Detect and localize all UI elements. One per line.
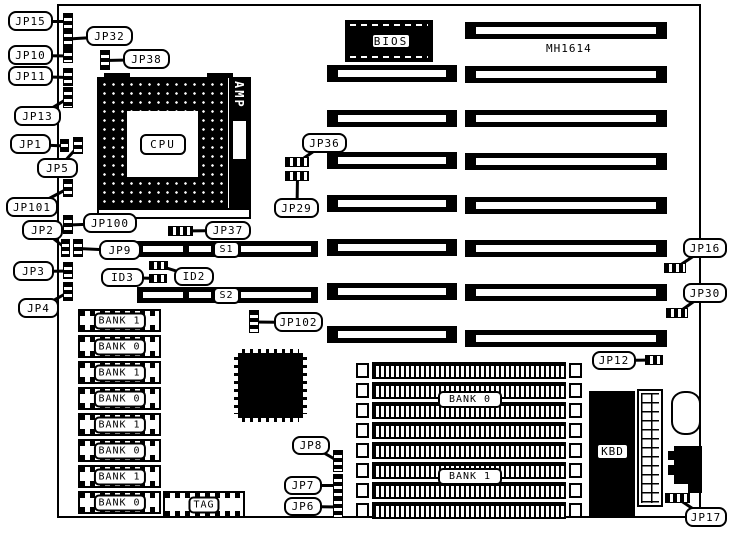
- amp-socket-lever: AMP: [229, 77, 251, 208]
- isa-slot-middle: [327, 110, 457, 127]
- power-connector: [637, 389, 663, 507]
- isa-slot-right: [465, 153, 667, 170]
- left-bank-label: BANK 0: [93, 442, 145, 459]
- callout-jp101-label: JP101: [6, 197, 58, 217]
- isa-slot-right: [465, 110, 667, 127]
- simm-slot-left: BANK 0: [78, 335, 161, 358]
- isa-slot-middle-contacts: [338, 157, 446, 164]
- jumper-jp101: [63, 179, 73, 197]
- callout-jp8-label: JP8: [292, 436, 330, 455]
- simm-slot-left: BANK 1: [78, 361, 161, 384]
- jumper-jp3: [63, 262, 73, 279]
- isa-slot-middle: [327, 239, 457, 256]
- isa-slot-middle: [327, 283, 457, 300]
- isa-slot-middle-contacts: [338, 115, 446, 122]
- motherboard-jumper-diagram: BIOS MH1614 CPU AMP TAG S1 S2 BANK 0 BAN…: [0, 0, 731, 536]
- left-bank-label: BANK 1: [93, 416, 145, 433]
- jumper-jp29: [285, 171, 309, 181]
- jumper-jp37: [168, 226, 193, 236]
- bios-chip-dash-top: [350, 24, 428, 26]
- simm-clip-right: [569, 423, 582, 438]
- jumper-jp2: [61, 239, 70, 257]
- isa-slot-middle-contacts: [338, 70, 446, 77]
- jumper-jp38: [100, 50, 110, 70]
- jumper-jp11: [63, 68, 73, 86]
- isa-slot-middle-contacts: [338, 200, 446, 207]
- isa-slot-right-contacts: [476, 115, 656, 122]
- isa-slot-middle-contacts: [338, 331, 446, 338]
- isa-slot-right-contacts: [476, 158, 656, 165]
- isa-slot-middle: [327, 65, 457, 82]
- slot-label-s2: S2: [213, 287, 240, 304]
- jumper-jp36: [285, 157, 309, 167]
- isa-slot-middle-contacts: [338, 288, 446, 295]
- callout-jp30-label: JP30: [683, 283, 727, 303]
- jumper-jp100: [63, 215, 73, 234]
- simm-clip-right: [569, 363, 582, 378]
- jumper-jp8: [333, 450, 343, 472]
- simm-socket-right: [356, 442, 582, 459]
- isa-slot-right: [465, 330, 667, 347]
- isa-slot-right: [465, 284, 667, 301]
- din-step: [688, 483, 702, 493]
- left-bank-label: BANK 1: [93, 468, 145, 485]
- callout-jp37-label: JP37: [205, 221, 251, 240]
- callout-jp10-label: JP10: [8, 45, 53, 65]
- left-bank-label: BANK 0: [93, 338, 145, 355]
- simm-clip-left: [356, 403, 369, 418]
- right-bank1-label: BANK 1: [438, 468, 502, 485]
- qfp-pins-top: [242, 349, 299, 353]
- jumper-jp10: [63, 48, 73, 63]
- isa-slot-right: [465, 240, 667, 257]
- simm-clip-left: [356, 503, 369, 518]
- mounting-blob-outline: [671, 391, 701, 435]
- simm-clip-right: [569, 383, 582, 398]
- isa-slot-right: [465, 197, 667, 214]
- callout-jp7-label: JP7: [284, 476, 322, 495]
- simm-socket-right: [356, 362, 582, 379]
- tag-label: TAG: [188, 496, 219, 513]
- qfp-chip: [238, 353, 303, 418]
- simm-clip-right: [569, 503, 582, 518]
- jumper-jp32: [63, 29, 73, 48]
- tag-socket: TAG: [163, 491, 245, 518]
- amp-lever-window: [233, 121, 246, 159]
- qfp-pins-left: [234, 357, 238, 414]
- callout-jp102-label: JP102: [274, 312, 323, 332]
- isa-slot-right: [465, 66, 667, 83]
- simm-socket-contacts: [372, 422, 566, 439]
- jumper-jp5: [73, 137, 83, 154]
- isa-slot-right-contacts: [476, 335, 656, 342]
- callout-jp11-label: JP11: [8, 66, 53, 86]
- jumper-jp15: [63, 13, 73, 29]
- isa-slot-middle-contacts: [338, 244, 446, 251]
- simm-slot-left: BANK 0: [78, 387, 161, 410]
- callout-jp15-label: JP15: [8, 11, 53, 31]
- callout-jp4-label: JP4: [18, 298, 59, 318]
- isa-slot-middle: [327, 152, 457, 169]
- amp-brand-label: AMP: [232, 81, 246, 109]
- callout-jp5-label: JP5: [37, 158, 78, 178]
- slot-bar-contact: [143, 246, 183, 252]
- slot-bar-contact: [241, 292, 311, 298]
- callout-jp32-label: JP32: [86, 26, 133, 46]
- isa-slot-right: [465, 22, 667, 39]
- callout-jp16-label: JP16: [683, 238, 727, 258]
- simm-clip-right: [569, 463, 582, 478]
- cpu-socket-tab-left: [104, 70, 130, 78]
- bios-label: BIOS: [371, 33, 411, 49]
- jumper-jp1: [60, 139, 69, 152]
- callout-jp29-label: JP29: [274, 198, 319, 218]
- slot-bar-contact: [189, 292, 211, 298]
- simm-slot-left: BANK 1: [78, 309, 161, 332]
- simm-socket-right: [356, 422, 582, 439]
- simm-clip-left: [356, 483, 369, 498]
- qfp-pins-right: [303, 357, 307, 414]
- slot-bar-contact: [241, 246, 311, 252]
- simm-clip-left: [356, 383, 369, 398]
- isa-slot-middle: [327, 195, 457, 212]
- simm-slot-left: BANK 0: [78, 491, 161, 514]
- left-bank-label: BANK 1: [93, 312, 145, 329]
- cpu-label: CPU: [140, 134, 186, 155]
- jumper-jp16: [664, 263, 686, 273]
- simm-clip-left: [356, 463, 369, 478]
- slot-label-s1: S1: [213, 241, 240, 258]
- simm-socket-contacts: [372, 362, 566, 379]
- callout-jp2-label: JP2: [22, 220, 63, 240]
- slot-bar-contact: [189, 246, 211, 252]
- jumper-jp12: [645, 355, 663, 365]
- left-bank-label: BANK 1: [93, 364, 145, 381]
- bios-chip-dash-bottom: [350, 56, 428, 58]
- jumper-jp4: [63, 282, 73, 301]
- isa-slot-right-contacts: [476, 27, 656, 34]
- jumper-id2: [149, 261, 168, 270]
- simm-clip-left: [356, 443, 369, 458]
- simm-clip-right: [569, 483, 582, 498]
- simm-slot-left: BANK 1: [78, 413, 161, 436]
- callout-id3-label: ID3: [101, 268, 144, 287]
- jumper-jp13: [63, 87, 73, 108]
- slot-bar-contact: [143, 292, 183, 298]
- callout-jp38-label: JP38: [123, 49, 170, 69]
- callout-jp6-label: JP6: [284, 497, 322, 516]
- callout-jp9-label: JP9: [99, 240, 141, 260]
- isa-slot-middle: [327, 326, 457, 343]
- isa-slot-right-contacts: [476, 202, 656, 209]
- simm-slot-left: BANK 1: [78, 465, 161, 488]
- right-bank0-label: BANK 0: [438, 391, 502, 408]
- din-tab-upper: [668, 451, 674, 460]
- callout-jp13-label: JP13: [14, 106, 61, 126]
- callout-jp12-label: JP12: [592, 351, 636, 370]
- callout-jp17-label: JP17: [685, 507, 727, 527]
- simm-socket-right: [356, 502, 582, 519]
- jumper-jp17: [665, 493, 690, 503]
- left-bank-label: BANK 0: [93, 494, 145, 511]
- kbd-label: KBD: [596, 443, 629, 460]
- jumper-jp9: [73, 239, 83, 257]
- jumper-jp6: [333, 496, 343, 518]
- isa-slot-right-contacts: [476, 289, 656, 296]
- simm-slot-left: BANK 0: [78, 439, 161, 462]
- simm-clip-right: [569, 403, 582, 418]
- callout-jp100-label: JP100: [83, 213, 137, 233]
- simm-socket-contacts: [372, 442, 566, 459]
- callout-id2-label: ID2: [174, 267, 214, 286]
- qfp-pins-bottom: [242, 418, 299, 422]
- isa-slot-right-contacts: [476, 245, 656, 252]
- simm-socket-contacts: [372, 502, 566, 519]
- keyboard-din-connector: [674, 446, 702, 484]
- callout-jp36-label: JP36: [302, 133, 347, 153]
- board-model-label: MH1614: [546, 42, 592, 55]
- jumper-id3: [149, 274, 167, 283]
- simm-clip-right: [569, 443, 582, 458]
- left-bank-label: BANK 0: [93, 390, 145, 407]
- power-connector-pins: [641, 393, 659, 503]
- isa-slot-right-contacts: [476, 71, 656, 78]
- callout-jp3-label: JP3: [13, 261, 54, 281]
- jumper-jp30: [666, 308, 688, 318]
- callout-jp1-label: JP1: [10, 134, 51, 154]
- din-tab-lower: [668, 465, 674, 475]
- jumper-jp102: [249, 310, 259, 333]
- jumper-jp7: [333, 474, 343, 497]
- simm-clip-left: [356, 423, 369, 438]
- simm-clip-left: [356, 363, 369, 378]
